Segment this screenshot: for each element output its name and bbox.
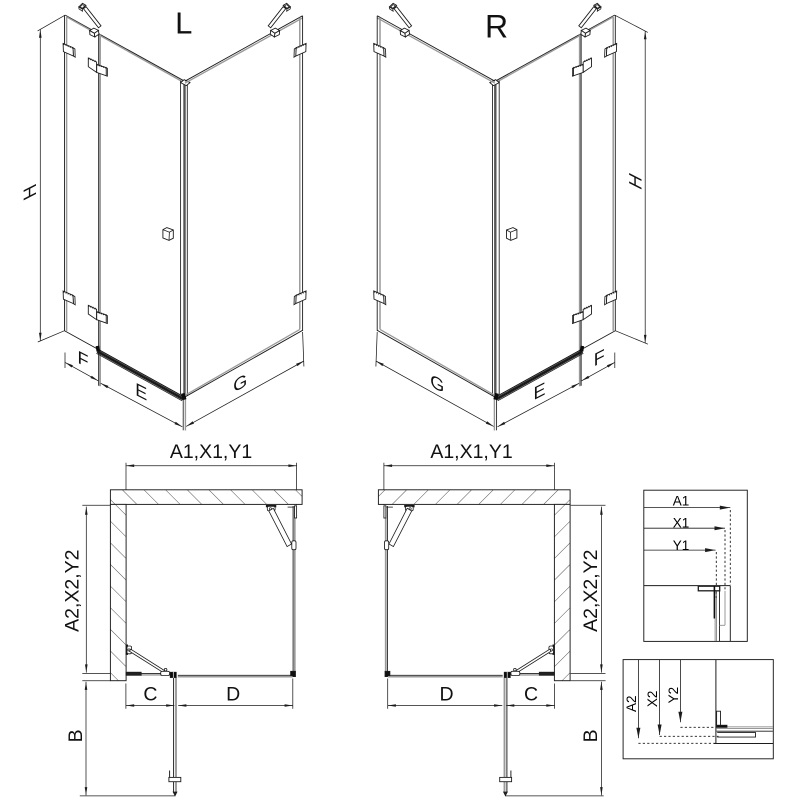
- svg-text:C: C: [524, 684, 538, 706]
- svg-text:A1,X1,Y1: A1,X1,Y1: [170, 441, 252, 463]
- svg-text:A1: A1: [673, 494, 690, 509]
- svg-text:D: D: [226, 684, 240, 706]
- svg-text:L: L: [175, 6, 192, 41]
- svg-text:A2,X2,Y2: A2,X2,Y2: [61, 550, 83, 632]
- svg-text:A1,X1,Y1: A1,X1,Y1: [430, 441, 512, 463]
- svg-text:B: B: [580, 729, 602, 742]
- svg-text:D: D: [439, 684, 453, 706]
- svg-text:Y1: Y1: [673, 538, 690, 553]
- svg-text:A2,X2,Y2: A2,X2,Y2: [580, 550, 602, 632]
- svg-text:Y2: Y2: [666, 687, 681, 704]
- svg-text:R: R: [485, 8, 508, 44]
- svg-text:A2: A2: [624, 695, 639, 712]
- svg-text:X1: X1: [673, 515, 690, 530]
- svg-text:B: B: [65, 729, 87, 742]
- svg-text:C: C: [143, 684, 157, 706]
- svg-text:X2: X2: [645, 691, 660, 708]
